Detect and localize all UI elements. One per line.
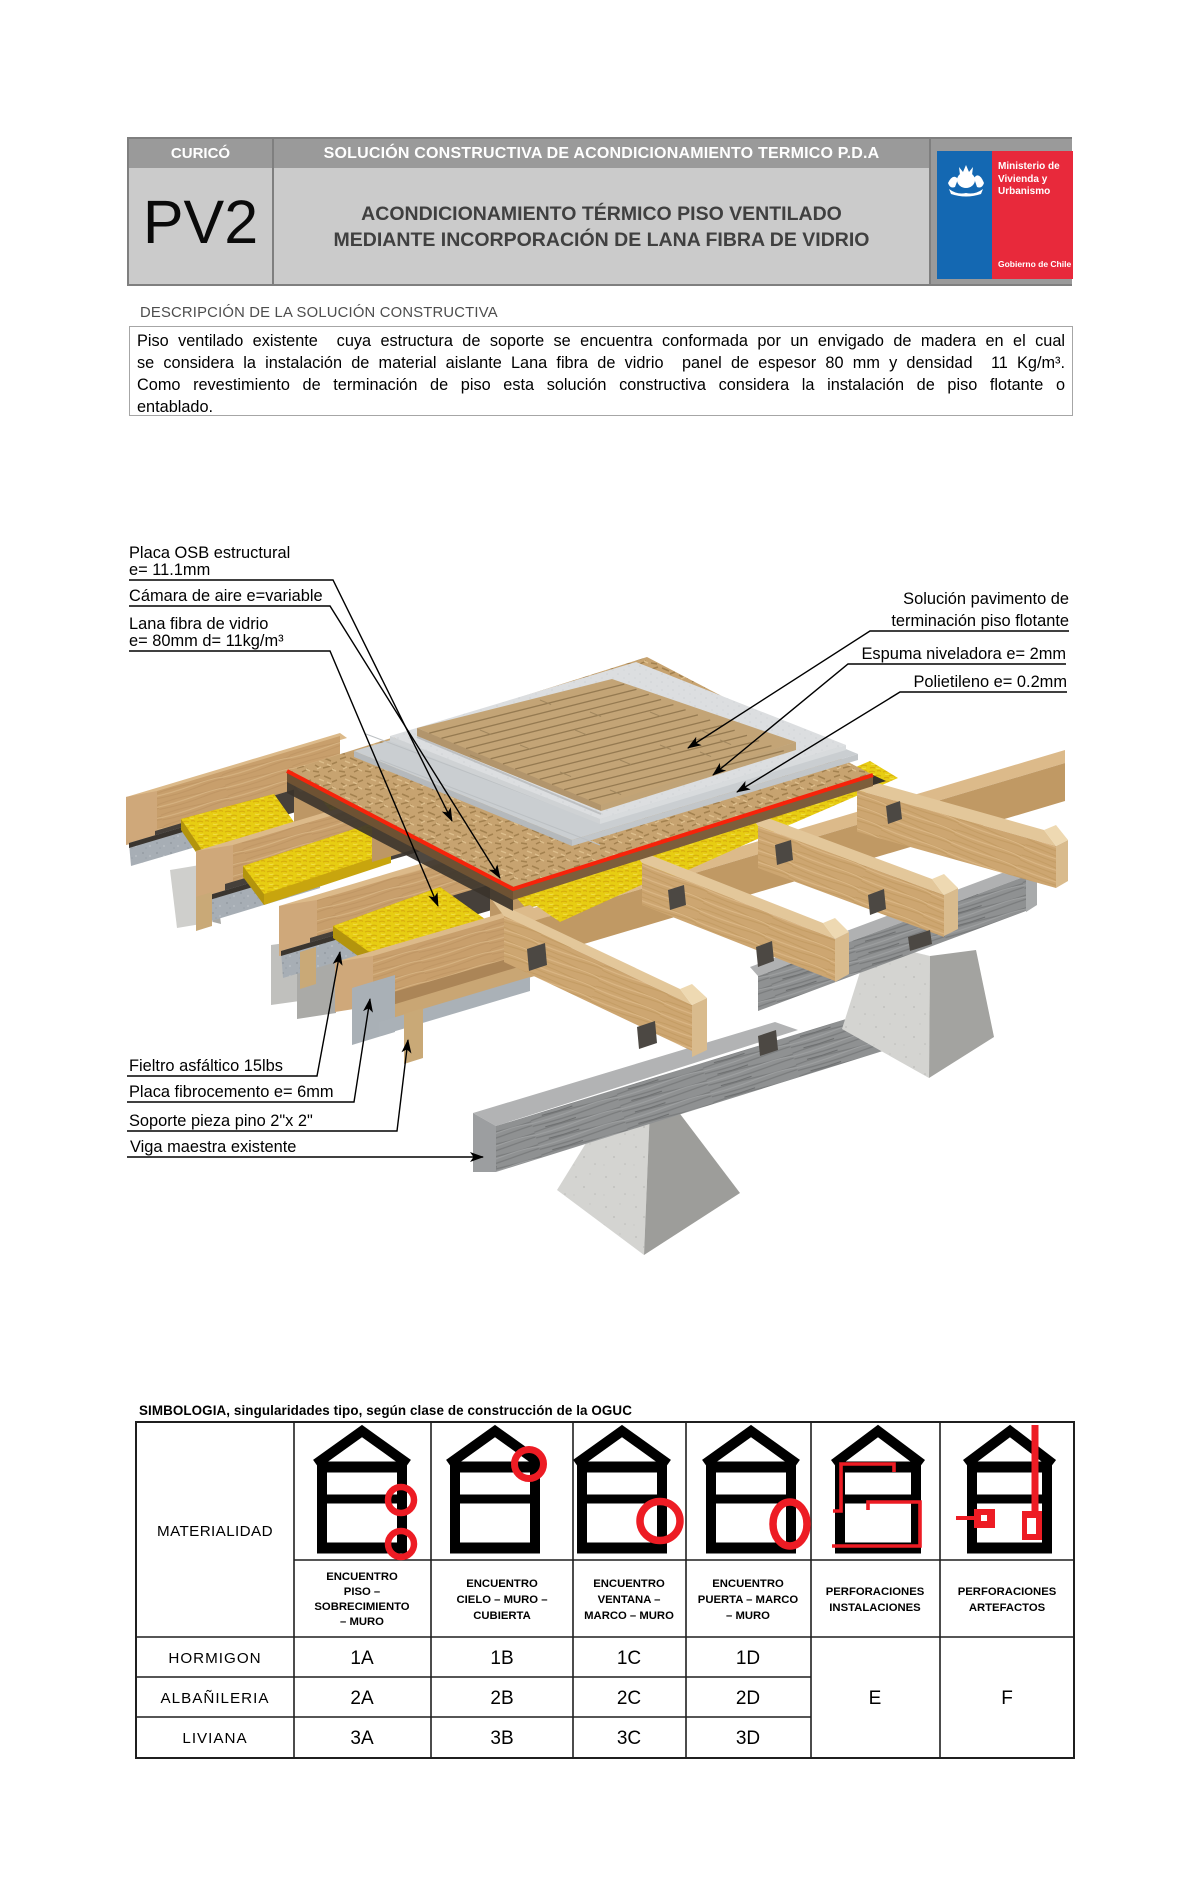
svg-text:PISO –: PISO – — [344, 1586, 380, 1598]
svg-text:3D: 3D — [736, 1728, 760, 1749]
svg-text:ENCUENTRO: ENCUENTRO — [712, 1578, 784, 1590]
svg-text:ENCUENTRO: ENCUENTRO — [326, 1571, 398, 1583]
svg-text:PERFORACIONES: PERFORACIONES — [958, 1586, 1057, 1598]
svg-text:ARTEFACTOS: ARTEFACTOS — [969, 1602, 1046, 1614]
svg-text:3B: 3B — [490, 1728, 513, 1749]
svg-text:PUERTA – MARCO: PUERTA – MARCO — [698, 1594, 799, 1606]
svg-text:ALBAÑILERIA: ALBAÑILERIA — [161, 1690, 270, 1707]
svg-text:2C: 2C — [617, 1688, 641, 1709]
svg-text:2B: 2B — [490, 1688, 513, 1709]
svg-text:– MURO: – MURO — [726, 1610, 770, 1622]
svg-text:MARCO – MURO: MARCO – MURO — [584, 1610, 674, 1622]
svg-text:F: F — [1001, 1688, 1013, 1709]
svg-text:1C: 1C — [617, 1648, 641, 1669]
svg-text:3A: 3A — [350, 1728, 374, 1749]
svg-text:2D: 2D — [736, 1688, 760, 1709]
svg-text:1B: 1B — [490, 1648, 513, 1669]
svg-text:ENCUENTRO: ENCUENTRO — [593, 1578, 665, 1590]
svg-text:HORMIGON: HORMIGON — [168, 1650, 261, 1667]
svg-text:CUBIERTA: CUBIERTA — [473, 1610, 531, 1622]
svg-text:INSTALACIONES: INSTALACIONES — [829, 1602, 921, 1614]
svg-text:E: E — [869, 1688, 882, 1709]
svg-text:VENTANA –: VENTANA – — [598, 1594, 661, 1606]
svg-text:3C: 3C — [617, 1728, 641, 1749]
svg-text:CIELO – MURO –: CIELO – MURO – — [456, 1594, 547, 1606]
svg-text:ENCUENTRO: ENCUENTRO — [466, 1578, 538, 1590]
svg-text:2A: 2A — [350, 1688, 374, 1709]
svg-text:– MURO: – MURO — [340, 1616, 384, 1628]
svg-text:SOBRECIMIENTO: SOBRECIMIENTO — [314, 1601, 409, 1613]
svg-text:MATERIALIDAD: MATERIALIDAD — [157, 1523, 273, 1540]
svg-text:1A: 1A — [350, 1648, 374, 1669]
svg-text:1D: 1D — [736, 1648, 760, 1669]
svg-text:PERFORACIONES: PERFORACIONES — [826, 1586, 925, 1598]
svg-text:LIVIANA: LIVIANA — [182, 1730, 247, 1747]
